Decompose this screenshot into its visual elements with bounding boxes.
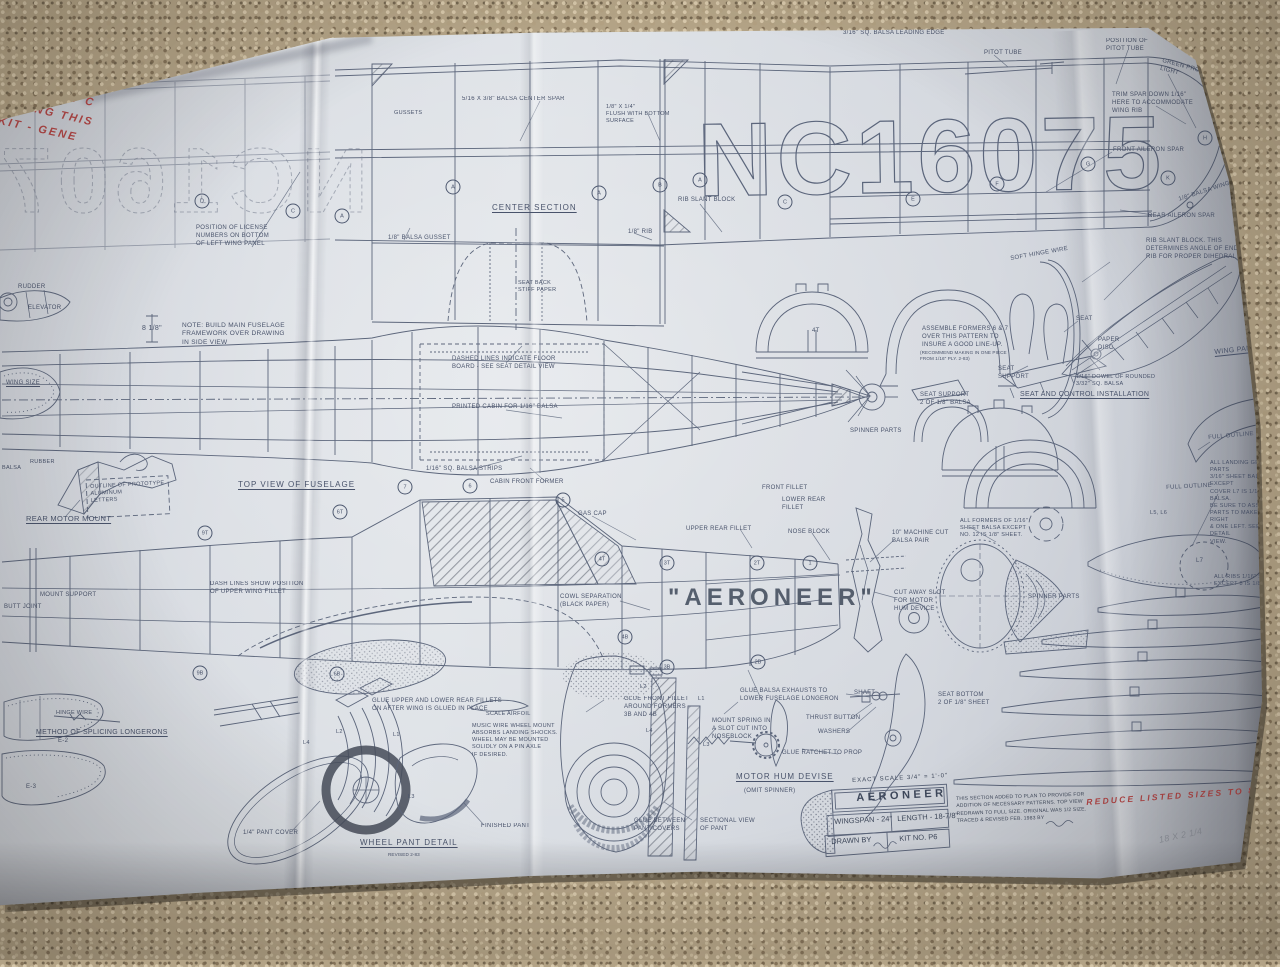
plan-label: GLUE FRONT FILLET AROUND FORMERS 3B AND … <box>624 696 689 719</box>
plan-label: SPINNER PARTS <box>850 428 902 436</box>
plan-label: HINGE WIRE <box>56 710 92 717</box>
handwritten-note: 1/4 SCALE <box>130 52 211 72</box>
aircraft-name: "AERONEER" <box>668 582 877 613</box>
plan-label: COWL SEPARATION (BLACK PAPER) <box>560 594 622 610</box>
plan-label: LOWER REAR FILLET <box>782 497 825 513</box>
part-callout: 6B <box>330 667 345 682</box>
part-callout: H <box>1198 131 1213 146</box>
plan-label: SEAT SUPPORT 2 OF 1/8" BALSA <box>920 392 971 408</box>
plan-label: ALL FORMERS OF 1/16" SHEET BALSA EXCEPT … <box>960 518 1028 539</box>
plan-label: 1/16" SQ. BALSA STRIPS <box>426 466 502 474</box>
part-callout: 2B <box>751 655 766 670</box>
part-callout: E <box>906 192 921 207</box>
plan-label: GLUE RATCHET TO PROP <box>782 750 862 758</box>
plan-label: MOTOR HUM DEVISE <box>736 772 834 782</box>
plan-label: E-3 <box>26 784 36 792</box>
part-callout: 9B <box>193 666 208 681</box>
plan-label: L4 <box>303 740 310 747</box>
plan-label: NOTE: BUILD MAIN FUSELAGE FRAMEWORK OVER… <box>182 322 285 347</box>
plan-label: DASH LINES SHOW POSITION OF UPPER WING F… <box>210 581 304 597</box>
part-callout: A <box>335 209 350 224</box>
plan-label: GLUE BETWEEN PANT COVERS <box>634 818 685 834</box>
plan-label: GLUE UPPER AND LOWER REAR FILLETS ON AFT… <box>372 698 502 714</box>
plan-label: SEAT AND CONTROL INSTALLATION <box>1020 390 1149 399</box>
plan-label: SCALE AIRFOIL <box>486 711 531 718</box>
plan-label: METHOD OF SPLICING LONGERONS <box>36 728 168 737</box>
plan-label: ASSEMBLE FORMERS 6 & 7 OVER THIS PATTERN… <box>922 326 1008 349</box>
part-callout: F <box>990 177 1005 192</box>
plan-label: CABIN FRONT FORMER <box>490 479 564 487</box>
part-callout: G <box>1081 157 1096 172</box>
plan-label: TRIM SPAR DOWN 1/16" HERE TO ACCOMMODATE… <box>1112 92 1193 115</box>
plan-label: PAPER DISC <box>1098 337 1119 353</box>
plan-label: L5, L6 <box>1150 510 1167 517</box>
plan-label: L1 <box>393 732 400 739</box>
plan-label: WHEEL PANT DETAIL <box>360 838 458 848</box>
plan-label: ALL RIBS 1/16" SHEET EXCEPT 8 IS 1/8" <box>1214 574 1278 588</box>
photo-of-model-plan: { "plan": { "registration": "NC16075", "… <box>0 0 1280 960</box>
plan-label: E-2 <box>58 738 68 746</box>
part-callout: D <box>195 194 210 209</box>
part-callout: 6 <box>463 479 478 494</box>
part-callout: 4B <box>618 630 633 645</box>
plan-label: (RECOMMEND MAKING IN ONE PIECE FROM 1/16… <box>920 350 1007 362</box>
plan-label: WING SIZE <box>6 380 40 388</box>
handwritten-note: BER BAND JOB TO PLAY AROUND WITH <box>112 3 437 31</box>
plan-label: 8 1/8" <box>142 324 162 333</box>
plan-label: 1/16" DOWEL OF ROUNDED 3/32" SQ. BALSA <box>1076 374 1155 388</box>
plan-label: BUTT JOINT <box>4 604 42 612</box>
handwritten-note: NOT EXACT C <box>0 76 97 111</box>
plan-label: 1/4" PANT COVER <box>243 830 298 838</box>
plan-label: PRINTED CABIN FOR 1/16" BALSA <box>452 404 558 412</box>
plan-label: THRUST BUTTON <box>806 715 860 723</box>
plan-label: L2 <box>336 729 343 736</box>
plan-label: CENTER SECTION <box>492 203 577 213</box>
plan-label: L3 <box>408 794 415 801</box>
part-callout: A <box>592 186 607 201</box>
part-callout: 1 <box>803 556 818 571</box>
plan-label: 1/8" RIB <box>628 229 653 237</box>
parts-patterns-drawing <box>936 400 1268 786</box>
registration-number-mirrored: NC16075 <box>0 130 368 232</box>
part-callout: C <box>286 204 301 219</box>
plan-label: RUDDER <box>18 284 45 292</box>
plan-label: (OMIT SPINNER) <box>744 788 795 796</box>
plan-label: REVISED 2-83 <box>388 852 420 858</box>
part-callout: 2T <box>750 556 765 571</box>
part-callout: B <box>653 178 668 193</box>
plan-label: TOP VIEW OF FUSELAGE <box>238 480 355 490</box>
plan-label: L2 <box>640 684 647 691</box>
plan-label: L3 <box>703 742 710 749</box>
handwritten-note: BUT GOOD ENOUGH - <box>112 30 289 53</box>
plan-label: RIB SLANT BLOCK <box>678 197 735 205</box>
plan-label: L1 <box>698 696 705 703</box>
fuselage-top-view-drawing <box>2 326 898 475</box>
part-callout: K <box>1161 171 1176 186</box>
plan-label: FRONT AILERON SPAR <box>1113 147 1184 155</box>
plan-label: MOUNT SUPPORT <box>40 592 96 600</box>
plan-label: NOSE BLOCK <box>788 529 830 537</box>
plan-label: SECTIONAL VIEW OF PANT <box>700 818 755 834</box>
plan-label: SEAT <box>1076 316 1092 324</box>
title-block-revision-note: THIS SECTION ADDED TO PLAN TO PROVIDE FO… <box>956 791 1087 825</box>
plan-label: RIB SLANT BLOCK. THIS DETERMINES ANGLE O… <box>1146 238 1238 261</box>
part-callout: 9T <box>198 526 213 541</box>
plan-label: CUT AWAY SLOT FOR MOTOR HUM DEVICE <box>894 590 945 613</box>
plan-label: RUBBER <box>30 459 55 466</box>
plan-label: 1/8" BALSA GUSSET <box>388 235 451 243</box>
plan-label: SHAFT <box>854 690 875 698</box>
part-callout: 4T <box>595 552 610 567</box>
part-callout: A <box>693 173 708 188</box>
plan-sheet: NC16075 NC16075 <box>0 0 1280 960</box>
plan-label: UPPER REAR FILLET <box>686 526 751 534</box>
plan-label: ALL LANDING GEAR PARTS 3/16" SHEET BALSA… <box>1210 460 1280 546</box>
handwritten-note: HERE IS A NI <box>0 58 93 89</box>
plan-label: POSITION OF PITOT TUBE <box>1106 38 1148 54</box>
plan-label: 1/8" x 1/4" FLUSH WITH BOTTOM SURFACE <box>606 104 670 125</box>
part-callout: 5 <box>556 493 571 508</box>
plan-label: BALSA <box>2 465 21 472</box>
plan-label: GLUE BALSA EXHAUSTS TO LOWER FUSELAGE LO… <box>740 688 839 704</box>
plan-label: L4 <box>646 728 653 735</box>
registration-number: NC16075 <box>696 95 1165 219</box>
plan-label: L7 <box>1196 558 1203 566</box>
plan-label: FRONT FILLET <box>762 485 808 493</box>
part-callout: 3T <box>660 556 675 571</box>
plan-label: 4T <box>812 328 820 336</box>
plan-label: 10" MACHINE CUT BALSA PAIR <box>892 530 949 546</box>
plan-label: SEAT SUPPORT <box>998 366 1029 382</box>
part-callout: A <box>446 180 461 195</box>
plan-label: REAR AILERON SPAR <box>1148 213 1215 221</box>
plan-label: ELEVATOR <box>28 305 61 313</box>
plan-label: PITOT TUBE <box>984 50 1022 58</box>
plan-label: GUSSETS <box>394 110 422 117</box>
part-callout: 6T <box>333 505 348 520</box>
part-callout: 3B <box>660 660 675 675</box>
part-callout: C <box>778 195 793 210</box>
part-callout: 7 <box>398 480 413 495</box>
plan-label: MOUNT SPRING IN A SLOT CUT INTO NOSEBLOC… <box>712 718 771 741</box>
plan-drawing: NC16075 NC16075 <box>0 0 1280 960</box>
plan-label: 3/16" SQ. BALSA LEADING EDGE <box>843 30 945 38</box>
plan-label: DASHED LINES INDICATE FLOOR BOARD - SEE … <box>452 356 556 372</box>
plan-label: 5/16 x 3/8" BALSA CENTER SPAR <box>462 96 565 104</box>
plan-label: MUSIC WIRE WHEEL MOUNT ABSORBS LANDING S… <box>472 723 558 759</box>
plan-label: POSITION OF LICENSE NUMBERS ON BOTTOM OF… <box>196 225 269 248</box>
plan-label: GAS CAP <box>578 511 607 519</box>
plan-label: FINISHED PANT <box>481 823 530 831</box>
plan-label: SEAT BOTTOM 2 OF 1/8" SHEET <box>938 692 990 708</box>
plan-label: WASHERS <box>818 729 850 737</box>
plan-label: SPINNER PARTS <box>1028 594 1080 602</box>
plan-label: OUTLINE OF PROTOTYPE ALUMINUM LETTERS <box>90 480 165 505</box>
plan-label: SEAT BACK STIFF PAPER <box>518 280 556 294</box>
plan-label: REAR MOTOR MOUNT <box>26 514 111 524</box>
